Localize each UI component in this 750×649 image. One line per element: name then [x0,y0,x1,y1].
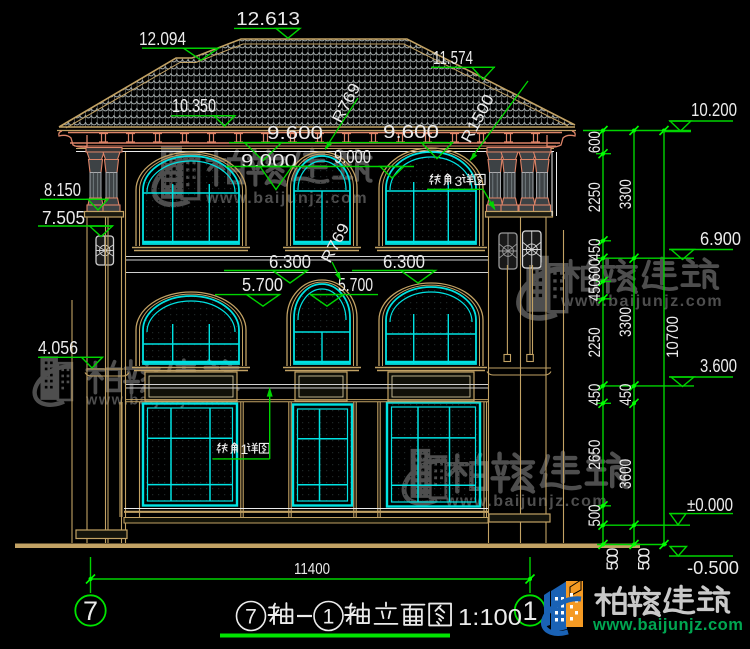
svg-text:1: 1 [522,596,537,626]
svg-text:7.505: 7.505 [42,208,85,228]
svg-text:3300: 3300 [616,179,635,209]
svg-text:9.600: 9.600 [383,122,439,142]
svg-text:8.150: 8.150 [44,180,81,200]
svg-text:9.600: 9.600 [267,123,323,143]
svg-text:3.600: 3.600 [700,356,737,376]
svg-text:2650: 2650 [585,440,604,470]
svg-text:1: 1 [323,606,335,629]
svg-text:500: 500 [603,548,622,571]
svg-text:9.000: 9.000 [334,147,371,167]
svg-text:7: 7 [83,596,98,626]
svg-text:3600: 3600 [616,459,635,489]
svg-text:450: 450 [585,384,604,406]
svg-text:6.900: 6.900 [700,229,741,249]
svg-text:6.300: 6.300 [269,252,311,272]
svg-text:450: 450 [585,239,604,261]
svg-text:11400: 11400 [294,561,330,578]
svg-text:500: 500 [585,505,604,527]
svg-text:www.baijunjz.com: www.baijunjz.com [592,616,743,634]
svg-text:11.574: 11.574 [433,48,473,68]
svg-text:450: 450 [616,384,635,406]
svg-text:7: 7 [245,606,257,629]
svg-text:3300: 3300 [616,307,635,337]
svg-text:-0.500: -0.500 [687,558,739,578]
svg-text:12.094: 12.094 [139,29,186,49]
svg-text:600: 600 [585,259,604,281]
svg-text:3: 3 [455,173,463,189]
svg-text:10.350: 10.350 [172,96,216,116]
svg-text:12.613: 12.613 [236,9,300,29]
svg-text:6.300: 6.300 [383,252,425,272]
svg-text:2250: 2250 [585,182,604,212]
svg-text:10700: 10700 [663,316,682,358]
svg-text:5.700: 5.700 [242,275,283,295]
svg-text:1:100: 1:100 [458,604,522,630]
svg-text:±0.000: ±0.000 [687,495,733,515]
svg-text:4.056: 4.056 [38,338,78,358]
svg-text:600: 600 [585,131,604,153]
svg-text:2250: 2250 [585,327,604,357]
svg-text:9.000: 9.000 [241,151,297,171]
svg-text:10.200: 10.200 [691,100,737,120]
svg-text:1: 1 [241,441,249,457]
svg-text:5.700: 5.700 [338,275,373,295]
svg-text:450: 450 [585,279,604,301]
svg-text:500: 500 [635,548,654,571]
